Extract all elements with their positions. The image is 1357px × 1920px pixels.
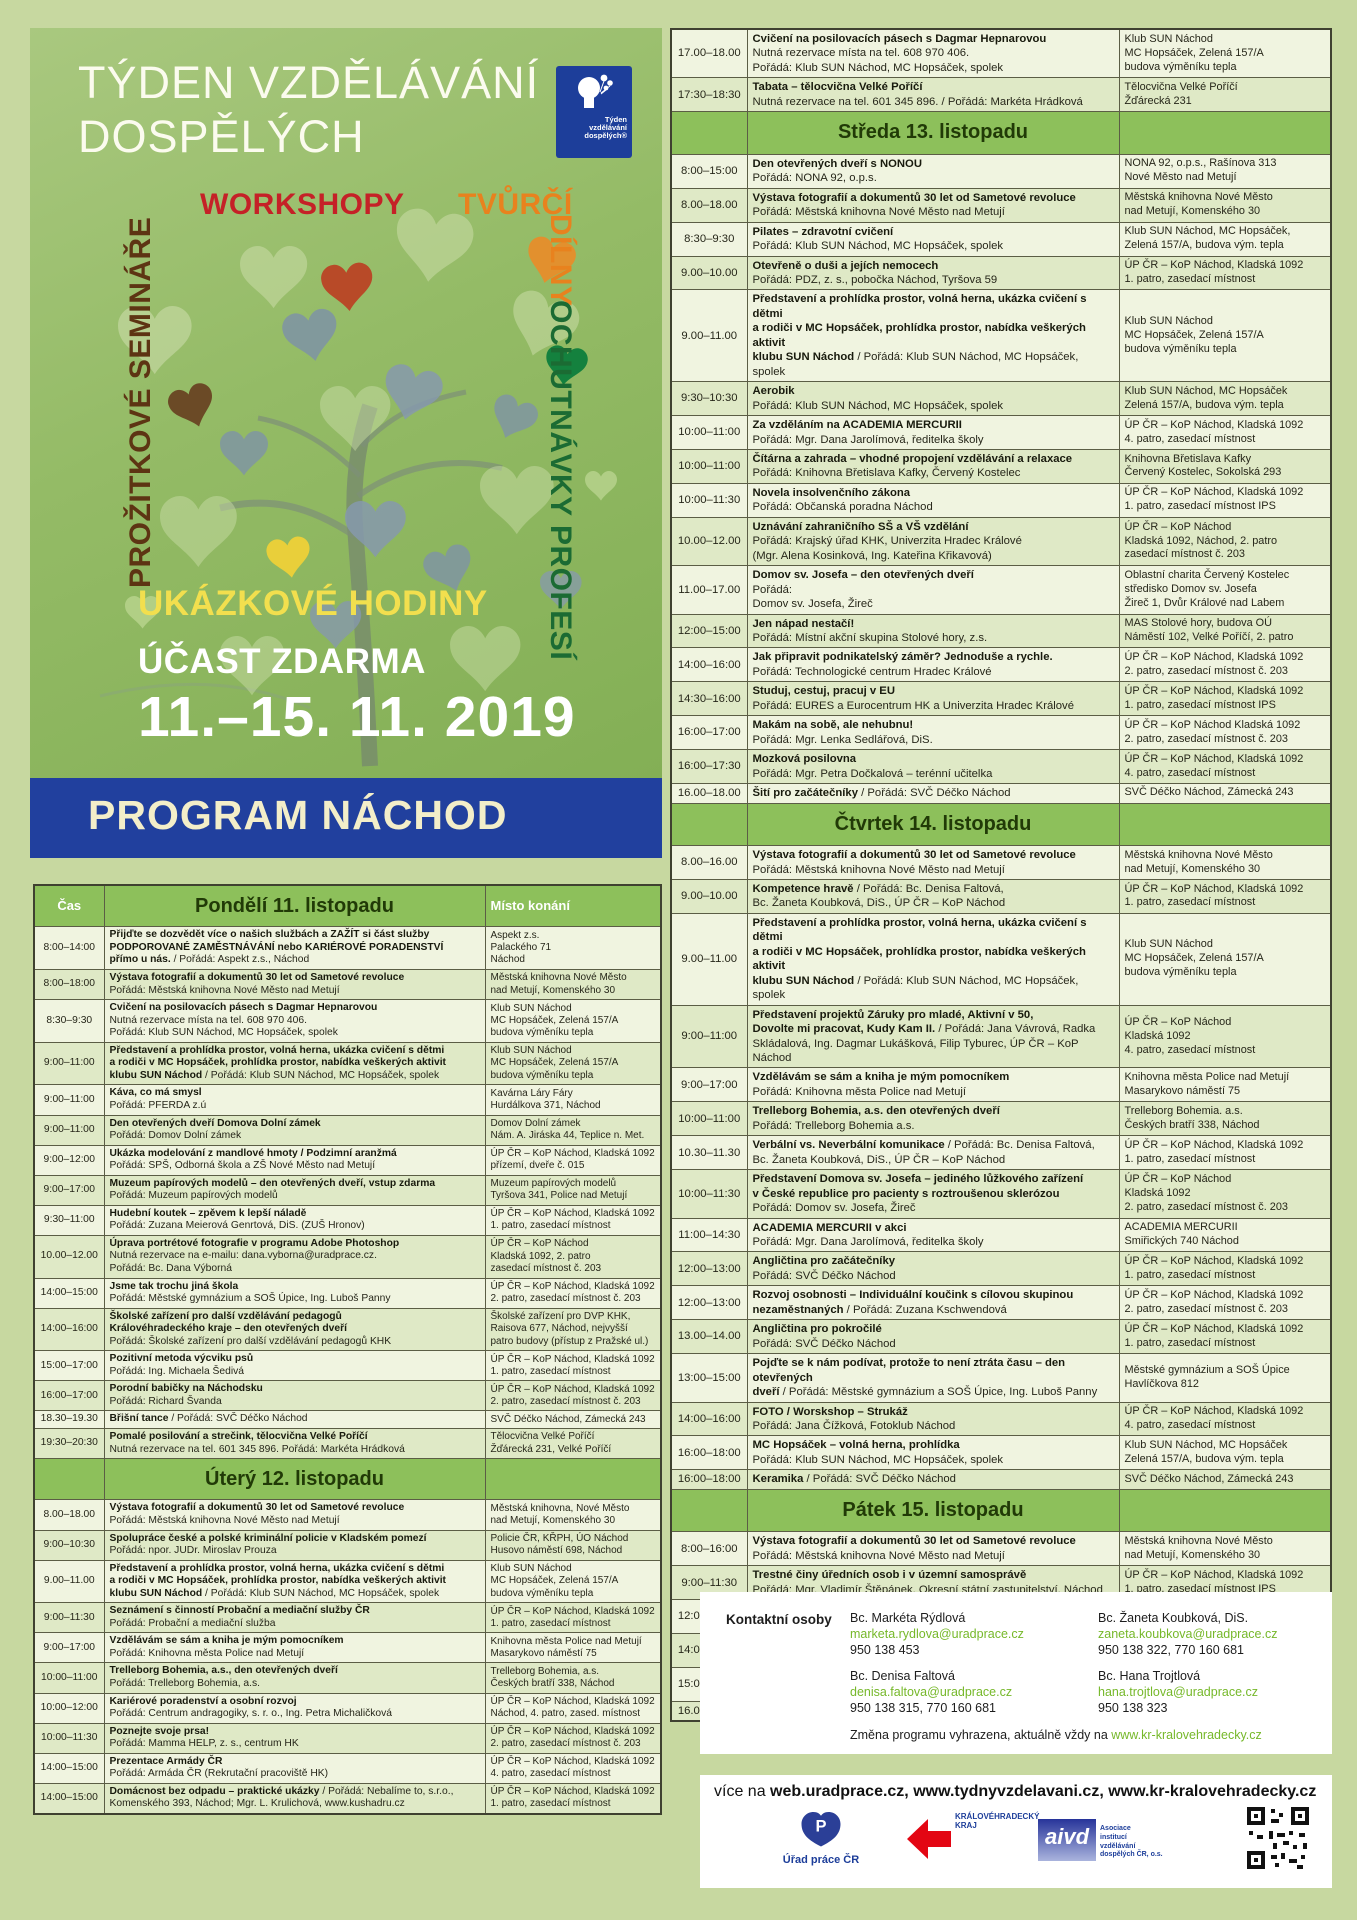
event-venue: ÚP ČR – KoP Náchod, Kladská 1092 1. patr… <box>485 1205 661 1235</box>
event-title: Výstava fotografií a dokumentů 30 let od… <box>110 1502 405 1513</box>
more-links[interactable]: web.uradprace.cz, www.tydnyvzdelavani.cz… <box>770 1783 1316 1800</box>
kraj-arrow-icon <box>905 1815 953 1863</box>
event-cell: Za vzděláním na ACADEMIA MERCURII Pořádá… <box>747 416 1119 450</box>
event-time: 16:00–17:00 <box>671 716 747 750</box>
tvd-logo-head-icon <box>572 70 616 116</box>
event-venue: ACADEMIA MERCURII Smiřických 740 Náchod <box>1119 1218 1331 1252</box>
event-cell: Aerobik Pořádá: Klub SUN Náchod, MC Hops… <box>747 382 1119 416</box>
program-table: 17.00–18.00Cvičení na posilovacích pásec… <box>670 28 1332 1722</box>
event-organizer: Pořádá: Městská knihovna Nové Město nad … <box>753 206 1005 218</box>
event-organizer: Pořádá: Klub SUN Náchod, MC Hopsáček, sp… <box>753 400 1004 412</box>
event-organizer: Pořádá: Občanská poradna Náchod <box>753 501 933 513</box>
keyword-ukazkove-hodiny: UKÁZKOVÉ HODINY <box>138 584 488 624</box>
event-row: 12:00–13:00Angličtina pro začátečníky Po… <box>671 1252 1331 1286</box>
event-row: 9:00–17:00Muzeum papírových modelů – den… <box>34 1175 661 1205</box>
event-title: Úprava portrétové fotografie v programu … <box>110 1238 400 1249</box>
day-header: Úterý 12. listopadu <box>104 1459 485 1500</box>
event-time: 10:00–11:00 <box>34 1663 104 1693</box>
event-title: Den otevřených dveří Domova Dolní zámek <box>110 1118 321 1129</box>
event-organizer: Pořádá: npor. JUDr. Miroslav Prouza <box>110 1545 277 1556</box>
event-time: 9:00–10:30 <box>34 1530 104 1560</box>
contact-name: Bc. Denisa Faltová <box>850 1668 1090 1684</box>
qr-code <box>1245 1805 1311 1871</box>
event-cell: Otevřeně o duši a jejích nemocech Pořádá… <box>747 256 1119 290</box>
event-time: 14:00–15:00 <box>34 1753 104 1783</box>
event-venue: Oblastní charita Červený Kostelec středi… <box>1119 566 1331 614</box>
event-cell: Seznámení s činností Probační a mediační… <box>104 1603 485 1633</box>
event-venue: ÚP ČR – KoP Náchod Kladská 1092, 2. patr… <box>485 1235 661 1278</box>
event-row: 19:30–20:30Pomalé posilování a strečink,… <box>34 1428 661 1458</box>
event-title: Představení Domova sv. Josefa – jediného… <box>753 1173 1084 1199</box>
event-venue: Policie ČR, KŘPH, ÚO Náchod Husovo náměs… <box>485 1530 661 1560</box>
event-venue: ÚP ČR – KoP Náchod, Kladská 1092 4. patr… <box>1119 1402 1331 1436</box>
event-venue: SVČ Déčko Náchod, Zámecká 243 <box>1119 1470 1331 1489</box>
contact-person: Bc. Markéta Rýdlová marketa.rydlova@urad… <box>850 1610 1090 1658</box>
event-time: 14:00–16:00 <box>34 1308 104 1351</box>
event-cell: MC Hopsáček – volná herna, prohlídka Poř… <box>747 1436 1119 1470</box>
event-row: 9.00–10.00Kompetence hravě / Pořádá: Bc.… <box>671 880 1331 914</box>
event-venue: Městské gymnázium a SOŠ Úpice Havlíčkova… <box>1119 1354 1331 1402</box>
event-organizer: Pořádá: Místní akční skupina Stolové hor… <box>753 632 988 644</box>
event-organizer: Pořádá: Domov sv. Josefa, Žireč <box>753 584 873 610</box>
program-banner: PROGRAM NÁCHOD <box>30 778 662 858</box>
event-time: 16:00–18:00 <box>671 1436 747 1470</box>
event-cell: Pozitivní metoda výcviku psů Pořádá: Ing… <box>104 1351 485 1381</box>
event-time: 12:00–13:00 <box>671 1252 747 1286</box>
event-cell: Jen nápad nestačí! Pořádá: Místní akční … <box>747 614 1119 648</box>
event-venue: ÚP ČR – KoP Náchod, Kladská 1092 1. patr… <box>1119 1136 1331 1170</box>
event-cell: Makám na sobě, ale nehubnu! Pořádá: Mgr.… <box>747 716 1119 750</box>
keyword-seminare: PROŽITKOVÉ SEMINÁŘE <box>124 198 158 588</box>
event-venue: Klub SUN Náchod MC Hopsáček, Zelená 157/… <box>1119 913 1331 1005</box>
event-time: 8:30–9:30 <box>34 1000 104 1043</box>
event-organizer: Pořádá: Mgr. Lenka Sedlářová, DiS. <box>753 734 933 746</box>
event-cell: Kariérové poradenství a osobní rozvoj Po… <box>104 1693 485 1723</box>
event-row: 13.00–14.00Angličtina pro pokročilé Pořá… <box>671 1320 1331 1354</box>
event-time: 9:00–17:00 <box>34 1633 104 1663</box>
poster-page: TÝDEN VZDĚLÁVÁNÍ DOSPĚLÝCH Týden vzděláv… <box>0 0 1357 1920</box>
event-venue: Knihovna Břetislava Kafky Červený Kostel… <box>1119 450 1331 484</box>
event-cell: Káva, co má smysl Pořádá: PFERDA z.ú <box>104 1085 485 1115</box>
event-time: 17:30–18:30 <box>671 78 747 112</box>
event-row: 16:00–17:00Porodní babičky na Náchodsku … <box>34 1381 661 1411</box>
event-organizer: / Pořádá: Zuzana Kschwendová <box>844 1304 1007 1316</box>
event-cell: Poznejte svoje prsa! Pořádá: Mamma HELP,… <box>104 1723 485 1753</box>
event-row: 14:00–16:00Školské zařízení pro další vz… <box>34 1308 661 1351</box>
event-time: 9:00–12:00 <box>34 1145 104 1175</box>
event-row: 9.00–11.00Představení a prohlídka prosto… <box>671 913 1331 1005</box>
event-organizer: Pořádá: Městské gymnázium a SOŠ Úpice, I… <box>110 1293 391 1304</box>
event-organizer: Pořádá: Probační a mediační služba <box>110 1618 276 1629</box>
event-venue: ÚP ČR – KoP Náchod Kladská 1092 2. patro… <box>1119 716 1331 750</box>
event-row: 14:00–16:00Jak připravit podnikatelský z… <box>671 648 1331 682</box>
event-title: Pomalé posilování a strečink, tělocvična… <box>110 1431 368 1442</box>
event-venue: Klub SUN Náchod, MC Hopsáček, Zelená 157… <box>1119 222 1331 256</box>
event-title: Čítárna a zahrada – vhodné propojení vzd… <box>753 453 1073 465</box>
event-row: 12:00–15:00Jen nápad nestačí! Pořádá: Mí… <box>671 614 1331 648</box>
event-organizer: Pořádá: Knihovna města Police nad Metují <box>753 1086 967 1098</box>
event-venue: Klub SUN Náchod MC Hopsáček, Zelená 157/… <box>485 1560 661 1603</box>
event-time: 10.30–11.30 <box>671 1136 747 1170</box>
note-link[interactable]: www.kr-kralovehradecky.cz <box>1111 1728 1262 1742</box>
event-cell: Cvičení na posilovacích pásech s Dagmar … <box>104 1000 485 1043</box>
day-header: Středa 13. listopadu <box>747 112 1119 155</box>
event-row: 9:30–10:30Aerobik Pořádá: Klub SUN Nácho… <box>671 382 1331 416</box>
event-row: 10:00–11:00Čítárna a zahrada – vhodné pr… <box>671 450 1331 484</box>
tvd-logo-label: Týden vzdělávání dospělých® <box>561 116 627 140</box>
event-title: Trelleborg Bohemia, a.s. den otevřených … <box>753 1105 1000 1117</box>
event-organizer: Pořádá: Trelleborg Bohemia, a.s. <box>110 1678 261 1689</box>
event-venue: Klub SUN Náchod MC Hopsáček, Zelená 157/… <box>1119 290 1331 382</box>
event-cell: Jsme tak trochu jiná škola Pořádá: Městs… <box>104 1278 485 1308</box>
event-title: Aerobik <box>753 385 795 397</box>
spacer-cell <box>1119 803 1331 846</box>
event-venue: Knihovna města Police nad Metují Masaryk… <box>485 1633 661 1663</box>
event-venue: Městská knihovna Nové Město nad Metují, … <box>1119 188 1331 222</box>
event-organizer: Pořádá: Školské zařízení pro další vzděl… <box>110 1336 392 1347</box>
event-time: 17.00–18.00 <box>671 29 747 78</box>
event-cell: Novela insolvenčního zákona Pořádá: Obča… <box>747 483 1119 517</box>
event-time: 10:00–11:00 <box>671 1102 747 1136</box>
note-text: Změna programu vyhrazena, aktuálně vždy … <box>850 1728 1111 1742</box>
event-time: 9:30–10:30 <box>671 382 747 416</box>
event-time: 10.00–12.00 <box>34 1235 104 1278</box>
event-row: 10:00–11:00Trelleborg Bohemia, a.s. den … <box>671 1102 1331 1136</box>
event-organizer: / Pořádá: Městské gymnázium a SOŠ Úpice,… <box>780 1386 1098 1398</box>
event-venue: ÚP ČR – KoP Náchod, Kladská 1092 2. patr… <box>485 1723 661 1753</box>
event-organizer: Pořádá: Městská knihovna Nové Město nad … <box>110 1515 340 1526</box>
event-cell: Čítárna a zahrada – vhodné propojení vzd… <box>747 450 1119 484</box>
event-venue: MAS Stolové hory, budova OÚ Náměstí 102,… <box>1119 614 1331 648</box>
contact-person: Bc. Denisa Faltová denisa.faltova@uradpr… <box>850 1668 1090 1716</box>
spacer-cell <box>671 803 747 846</box>
contact-person: Bc. Hana Trojtlová hana.trojtlova@uradpr… <box>1098 1668 1338 1716</box>
event-time: 10:00–11:00 <box>671 450 747 484</box>
event-time: 10:00–11:30 <box>671 1170 747 1218</box>
event-cell: Verbální vs. Neverbální komunikace / Poř… <box>747 1136 1119 1170</box>
contact-name: Bc. Žaneta Koubková, DiS. <box>1098 1610 1338 1626</box>
event-title: ACADEMIA MERCURII v akci <box>753 1222 907 1234</box>
event-title: Seznámení s činností Probační a mediační… <box>110 1605 370 1616</box>
event-cell: Výstava fotografií a dokumentů 30 let od… <box>747 1532 1119 1566</box>
event-row: 12:00–13:00Rozvoj osobnosti – Individuál… <box>671 1286 1331 1320</box>
event-venue: ÚP ČR – KoP Náchod, Kladská 1092 2. patr… <box>485 1278 661 1308</box>
event-venue: ÚP ČR – KoP Náchod, Kladská 1092 Náchod,… <box>485 1693 661 1723</box>
day-header: Pondělí 11. listopadu <box>104 885 485 927</box>
event-cell: Představení a prohlídka prostor, volná h… <box>747 913 1119 1005</box>
event-time: 10:00–11:00 <box>671 416 747 450</box>
urad-prace-label: Úřad práce ČR <box>766 1854 876 1866</box>
event-organizer: Pořádá: SVČ Déčko Náchod <box>753 1338 896 1350</box>
time-column-header: Čas <box>34 885 104 927</box>
event-time: 11.00–17.00 <box>671 566 747 614</box>
event-organizer: / Pořádá: Klub SUN Náchod, MC Hopsáček, … <box>202 1070 439 1081</box>
event-time: 8:00–15:00 <box>671 154 747 188</box>
event-row: 8:30–9:30Cvičení na posilovacích pásech … <box>34 1000 661 1043</box>
contacts-label: Kontaktní osoby <box>726 1612 832 1627</box>
event-venue: ÚP ČR – KoP Náchod, Kladská 1092 1. patr… <box>1119 483 1331 517</box>
event-time: 9:00–17:00 <box>671 1068 747 1102</box>
event-venue: Městská knihovna Nové Město nad Metují, … <box>1119 846 1331 880</box>
event-time: 14:30–16:00 <box>671 682 747 716</box>
contact-email-link[interactable]: marketa.rydlova@uradprace.cz <box>850 1626 1090 1642</box>
event-time: 16.00–18.00 <box>671 784 747 803</box>
event-cell: Pojďte se k nám podívat, protože to není… <box>747 1354 1119 1402</box>
event-time: 16:00–17:30 <box>671 750 747 784</box>
event-title: Kompetence hravě <box>753 883 854 895</box>
event-venue: ÚP ČR – KoP Náchod, Kladská 1092 přízemí… <box>485 1145 661 1175</box>
contacts-section: Kontaktní osoby Bc. Markéta Rýdlová mark… <box>700 1592 1332 1754</box>
event-row: 9:00–17:00Vzdělávám se sám a kniha je mý… <box>671 1068 1331 1102</box>
footer-section: více na web.uradprace.cz, www.tydnyvzdel… <box>700 1775 1332 1888</box>
event-title: Muzeum papírových modelů – den otevřenýc… <box>110 1178 436 1189</box>
event-title: Šití pro začátečníky <box>753 787 858 799</box>
event-title: Školské zařízení pro další vzdělávání pe… <box>110 1311 348 1335</box>
event-time: 8:00–16:00 <box>671 1532 747 1566</box>
event-row: 10.00–12.00Uznávání zahraničního SŠ a VŠ… <box>671 517 1331 565</box>
spacer-cell <box>485 1459 661 1500</box>
event-row: 8:30–9:30Pilates – zdravotní cvičení Poř… <box>671 222 1331 256</box>
event-title: Pilates – zdravotní cvičení <box>753 226 894 238</box>
event-cell: Domov sv. Josefa – den otevřených dveří … <box>747 566 1119 614</box>
contact-name: Bc. Markéta Rýdlová <box>850 1610 1090 1626</box>
event-venue: Městská knihovna Nové Město nad Metují, … <box>485 970 661 1000</box>
event-organizer: Pořádá: Centrum andragogiky, s. r. o., I… <box>110 1708 393 1719</box>
event-title: Jsme tak trochu jiná škola <box>110 1281 239 1292</box>
event-venue: ÚP ČR – KoP Náchod, Kladská 1092 1. patr… <box>485 1351 661 1381</box>
spacer-cell <box>1119 1489 1331 1532</box>
event-time: 14:00–16:00 <box>671 648 747 682</box>
event-row: 9:30–11:00Hudební koutek – zpěvem k lepš… <box>34 1205 661 1235</box>
event-row: 11:00–14:30ACADEMIA MERCURII v akci Pořá… <box>671 1218 1331 1252</box>
svg-text:P: P <box>815 1818 826 1836</box>
event-organizer: Nutná rezervace místa na tel. 608 970 40… <box>753 47 1004 73</box>
tvd-logo: Týden vzdělávání dospělých® <box>556 66 632 158</box>
event-time: 9:00–11:00 <box>34 1115 104 1145</box>
event-cell: Úprava portrétové fotografie v programu … <box>104 1235 485 1278</box>
event-time: 13.00–14.00 <box>671 1320 747 1354</box>
event-row: 9.00–10.00Otevřeně o duši a jejích nemoc… <box>671 256 1331 290</box>
event-title: Výstava fotografií a dokumentů 30 let od… <box>110 972 405 983</box>
event-cell: Mozková posilovna Pořádá: Mgr. Petra Doč… <box>747 750 1119 784</box>
event-cell: Hudební koutek – zpěvem k lepší náladě P… <box>104 1205 485 1235</box>
event-title: Pozitivní metoda výcviku psů <box>110 1353 254 1364</box>
spacer-cell <box>671 1489 747 1532</box>
event-organizer: Pořádá: PDZ, z. s., pobočka Náchod, Tyrš… <box>753 274 998 286</box>
event-time: 11:00–14:30 <box>671 1218 747 1252</box>
event-venue: ÚP ČR – KoP Náchod, Kladská 1092 2. patr… <box>1119 1286 1331 1320</box>
event-row: 16:00–18:00Keramika / Pořádá: SVČ Déčko … <box>671 1470 1331 1489</box>
event-row: 10:00–12:00Kariérové poradenství a osobn… <box>34 1693 661 1723</box>
event-cell: Muzeum papírových modelů – den otevřenýc… <box>104 1175 485 1205</box>
event-venue: Školské zařízení pro DVP KHK, Raisova 67… <box>485 1308 661 1351</box>
event-cell: Přijďte se dozvědět více o našich službá… <box>104 927 485 970</box>
event-time: 9:00–11:00 <box>671 1005 747 1068</box>
event-venue: Trelleborg Bohemia, a.s. Českých bratří … <box>485 1663 661 1693</box>
event-time: 19:30–20:30 <box>34 1428 104 1458</box>
event-time: 9.00–10.00 <box>671 880 747 914</box>
event-venue: SVČ Déčko Náchod, Zámecká 243 <box>1119 784 1331 803</box>
event-organizer: / Pořádá: SVČ Déčko Náchod <box>803 1473 956 1485</box>
event-row: 8:00–18:00Výstava fotografií a dokumentů… <box>34 970 661 1000</box>
event-row: 9.00–11.00Představení a prohlídka prosto… <box>34 1560 661 1603</box>
event-row: 16:00–17:00Makám na sobě, ale nehubnu! P… <box>671 716 1331 750</box>
event-time: 12:00–13:00 <box>671 1286 747 1320</box>
event-organizer: Pořádá: Jana Čížková, Fotoklub Náchod <box>753 1420 956 1432</box>
event-organizer: Pořádá: Knihovna Břetislava Kafky, Červe… <box>753 467 1021 479</box>
event-row: 15:00–17:00Pozitivní metoda výcviku psů … <box>34 1351 661 1381</box>
event-title: Domov sv. Josefa – den otevřených dveří <box>753 569 974 581</box>
event-cell: Keramika / Pořádá: SVČ Déčko Náchod <box>747 1470 1119 1489</box>
event-organizer: Pořádá: Klub SUN Náchod, MC Hopsáček, sp… <box>753 240 1004 252</box>
event-title: Trelleborg Bohemia, a.s., den otevřených… <box>110 1665 338 1676</box>
event-title: Tabata – tělocvična Velké Poříčí <box>753 81 923 93</box>
event-time: 9:00–11:00 <box>34 1085 104 1115</box>
event-venue: SVČ Déčko Náchod, Zámecká 243 <box>485 1411 661 1429</box>
event-organizer: Pořádá: Richard Švanda <box>110 1396 222 1407</box>
event-row: 14:30–16:00Studuj, cestuj, pracuj v EU P… <box>671 682 1331 716</box>
event-venue: ÚP ČR – KoP Náchod, Kladská 1092 4. patr… <box>485 1753 661 1783</box>
event-cell: Školské zařízení pro další vzdělávání pe… <box>104 1308 485 1351</box>
event-row: 17:30–18:30Tabata – tělocvična Velké Poř… <box>671 78 1331 112</box>
spacer-cell <box>34 1459 104 1500</box>
event-title: Spolupráce české a polské kriminální pol… <box>110 1533 427 1544</box>
event-organizer: / Pořádá: SVČ Déčko Náchod <box>858 787 1011 799</box>
contact-phone: 950 138 453 <box>850 1642 1090 1658</box>
event-title: Trestné činy úředních osob i v územní sa… <box>753 1569 1027 1581</box>
event-time: 8:00–14:00 <box>34 927 104 970</box>
event-organizer: Nutná rezervace na tel. 601 345 896. / P… <box>753 96 1083 108</box>
event-time: 8.00–16.00 <box>671 846 747 880</box>
event-title: Uznávání zahraničního SŠ a VŠ vzdělání <box>753 521 969 533</box>
event-cell: Studuj, cestuj, pracuj v EU Pořádá: EURE… <box>747 682 1119 716</box>
spacer-cell <box>1119 112 1331 155</box>
event-organizer: Pořádá: Mgr. Dana Jarolímová, ředitelka … <box>753 434 984 446</box>
event-row: 11.00–17.00Domov sv. Josefa – den otevře… <box>671 566 1331 614</box>
event-cell: Pilates – zdravotní cvičení Pořádá: Klub… <box>747 222 1119 256</box>
contact-email-link[interactable]: denisa.faltova@uradprace.cz <box>850 1684 1090 1700</box>
event-cell: Porodní babičky na Náchodsku Pořádá: Ric… <box>104 1381 485 1411</box>
event-time: 10:00–12:00 <box>34 1693 104 1723</box>
event-venue: Klub SUN Náchod MC Hopsáček, Zelená 157/… <box>1119 29 1331 78</box>
event-time: 12:00–15:00 <box>671 614 747 648</box>
event-venue: ÚP ČR – KoP Náchod, Kladská 1092 4. patr… <box>1119 750 1331 784</box>
event-venue: ÚP ČR – KoP Náchod, Kladská 1092 1. patr… <box>485 1783 661 1814</box>
event-cell: Spolupráce české a polské kriminální pol… <box>104 1530 485 1560</box>
event-date-range: 11.–15. 11. 2019 <box>138 684 576 750</box>
event-time: 8:30–9:30 <box>671 222 747 256</box>
event-organizer: Pořádá: Technologické centrum Hradec Krá… <box>753 666 992 678</box>
event-time: 13:00–15:00 <box>671 1354 747 1402</box>
event-title: Angličtina pro začátečníky <box>753 1255 896 1267</box>
kralovehradecky-kraj-logo: KRÁLOVÉHRADECKÝ KRAJ <box>905 1815 1025 1868</box>
event-title: Studuj, cestuj, pracuj v EU <box>753 685 896 697</box>
event-venue: ÚP ČR – KoP Náchod, Kladská 1092 4. patr… <box>1119 416 1331 450</box>
event-time: 8.00–18.00 <box>671 188 747 222</box>
event-venue: Tělocvična Velké Poříčí Žďárecká 231 <box>1119 78 1331 112</box>
contact-email-link[interactable]: zaneta.koubkova@uradprace.cz <box>1098 1626 1338 1642</box>
event-time: 9.00–10.00 <box>671 256 747 290</box>
event-title: Jak připravit podnikatelský záměr? Jedno… <box>753 651 1053 663</box>
event-title: Mozková posilovna <box>753 753 857 765</box>
more-prefix: více na <box>714 1783 770 1800</box>
event-row: 9.00–11.00Představení a prohlídka prosto… <box>671 290 1331 382</box>
event-title: Břišní tance <box>110 1413 169 1424</box>
contact-phone: 950 138 322, 770 160 681 <box>1098 1642 1338 1658</box>
event-row: 17.00–18.00Cvičení na posilovacích pásec… <box>671 29 1331 78</box>
event-time: 9.00–11.00 <box>671 290 747 382</box>
event-venue: ÚP ČR – KoP Náchod, Kladská 1092 1. patr… <box>485 1603 661 1633</box>
event-venue: ÚP ČR – KoP Náchod, Kladská 1092 1. patr… <box>1119 880 1331 914</box>
table-header-row: ČasPondělí 11. listopaduMísto konání <box>34 885 661 927</box>
event-title: MC Hopsáček – volná herna, prohlídka <box>753 1439 960 1451</box>
day-band-row: Pátek 15. listopadu <box>671 1489 1331 1532</box>
day-band-row: Čtvrtek 14. listopadu <box>671 803 1331 846</box>
event-organizer: Pořádá: Městská knihovna Nové Město nad … <box>753 1550 1005 1562</box>
event-cell: Uznávání zahraničního SŠ a VŠ vzdělání P… <box>747 517 1119 565</box>
event-time: 10:00–11:30 <box>671 483 747 517</box>
keyword-workshopy: WORKSHOPY <box>200 188 405 222</box>
event-row: 9:00–17:00Vzdělávám se sám a kniha je mý… <box>34 1633 661 1663</box>
event-time: 18.30–19.30 <box>34 1411 104 1429</box>
poster-title: TÝDEN VZDĚLÁVÁNÍ DOSPĚLÝCH <box>78 56 539 164</box>
program-table-right: 17.00–18.00Cvičení na posilovacích pásec… <box>670 28 1332 1722</box>
event-organizer: Pořádá: Knihovna města Police nad Metují <box>110 1648 305 1659</box>
event-organizer: Pořádá: Domov Dolní zámek <box>110 1130 242 1141</box>
event-venue: Klub SUN Náchod, MC Hopsáček Zelená 157/… <box>1119 1436 1331 1470</box>
keyword-ucast-zdarma: ÚČAST ZDARMA <box>138 642 426 682</box>
event-time: 9:00–11:00 <box>34 1042 104 1085</box>
event-row: 13:00–15:00Pojďte se k nám podívat, prot… <box>671 1354 1331 1402</box>
program-banner-title: PROGRAM NÁCHOD <box>88 792 662 839</box>
event-title: Prezentace Armády ČR <box>110 1756 223 1767</box>
event-row: 18.30–19.30Břišní tance / Pořádá: SVČ Dé… <box>34 1411 661 1429</box>
event-title: Výstava fotografií a dokumentů 30 let od… <box>753 192 1076 204</box>
event-venue: Kavárna Láry Fáry Hurdálkova 371, Náchod <box>485 1085 661 1115</box>
event-title: Den otevřených dveří s NONOU <box>753 158 923 170</box>
event-row: 16.00–18.00Šití pro začátečníky / Pořádá… <box>671 784 1331 803</box>
event-row: 9:00–11:00Den otevřených dveří Domova Do… <box>34 1115 661 1145</box>
event-venue: ÚP ČR – KoP Náchod, Kladská 1092 1. patr… <box>1119 256 1331 290</box>
event-venue: Klub SUN Náchod MC Hopsáček, Zelená 157/… <box>485 1000 661 1043</box>
event-organizer: / Pořádá: Klub SUN Náchod, MC Hopsáček, … <box>202 1588 439 1599</box>
event-cell: Výstava fotografií a dokumentů 30 let od… <box>747 846 1119 880</box>
contact-email-link[interactable]: hana.trojtlova@uradprace.cz <box>1098 1684 1338 1700</box>
event-title: FOTO / Worskshop – Strukáž <box>753 1406 908 1418</box>
event-organizer: Pořádá: Trelleborg Bohemia a.s. <box>753 1120 915 1132</box>
event-row: 8.00–18.00Výstava fotografií a dokumentů… <box>671 188 1331 222</box>
day-band-row: Středa 13. listopadu <box>671 112 1331 155</box>
event-venue: Městská knihovna, Nové Město nad Metují,… <box>485 1500 661 1530</box>
event-time: 10.00–12.00 <box>671 517 747 565</box>
event-cell: Prezentace Armády ČR Pořádá: Armáda ČR (… <box>104 1753 485 1783</box>
event-venue: ÚP ČR – KoP Náchod, Kladská 1092 2. patr… <box>485 1381 661 1411</box>
event-row: 14:00–15:00Jsme tak trochu jiná škola Po… <box>34 1278 661 1308</box>
event-title: Za vzděláním na ACADEMIA MERCURII <box>753 419 962 431</box>
event-organizer: Pořádá: SVČ Déčko Náchod <box>753 1270 896 1282</box>
aivd-logo: aivdAsociace institucí vzdělávání dospěl… <box>1038 1819 1170 1861</box>
event-organizer: / Pořádá: SVČ Déčko Náchod <box>168 1413 307 1424</box>
urad-prace-logo: P Úřad práce ČR <box>766 1809 876 1866</box>
more-info-line: více na web.uradprace.cz, www.tydnyvzdel… <box>714 1783 1316 1801</box>
event-time: 15:00–17:00 <box>34 1351 104 1381</box>
event-cell: Den otevřených dveří Domova Dolní zámek … <box>104 1115 485 1145</box>
event-row: 8:00–14:00Přijďte se dozvědět více o naš… <box>34 927 661 970</box>
event-organizer: Nutná rezervace místa na tel. 608 970 40… <box>110 1015 338 1039</box>
event-row: 8:00–16:00Výstava fotografií a dokumentů… <box>671 1532 1331 1566</box>
event-organizer: / Pořádá: Aspekt z.s., Náchod <box>171 954 310 965</box>
event-row: 10.00–12.00Úprava portrétové fotografie … <box>34 1235 661 1278</box>
